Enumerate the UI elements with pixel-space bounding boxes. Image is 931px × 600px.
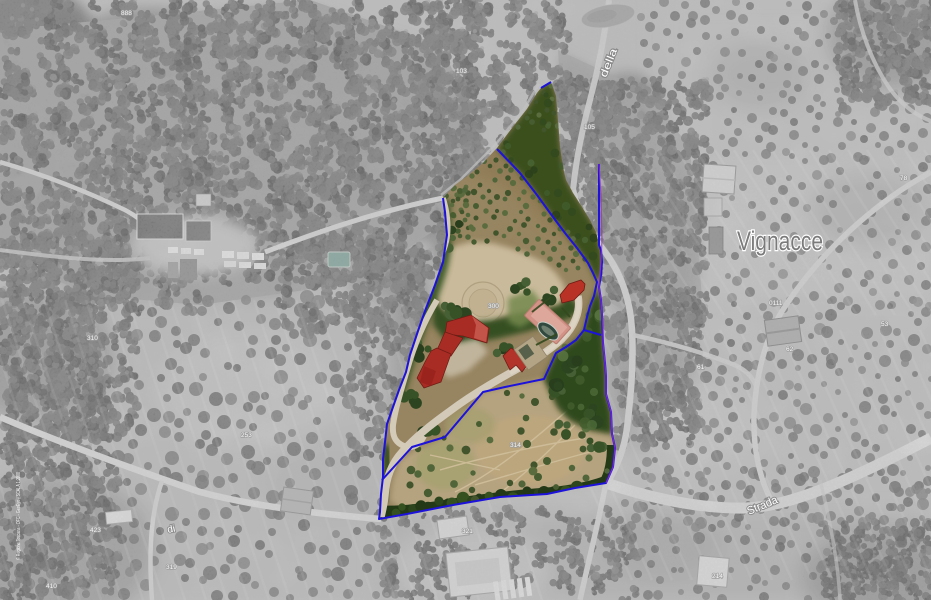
svg-text:105: 105 [584,124,595,131]
svg-text:214: 214 [712,573,723,580]
svg-text:253: 253 [241,432,252,439]
svg-text:321: 321 [462,528,473,535]
svg-text:Vignacce: Vignacce [737,226,823,256]
svg-text:61: 61 [697,364,705,371]
svg-text:888: 888 [121,10,132,17]
svg-text:300: 300 [488,303,499,310]
svg-text:410: 410 [46,583,57,590]
svg-text:0111: 0111 [769,300,783,307]
svg-text:53: 53 [881,321,889,328]
svg-text:319: 319 [166,564,177,571]
svg-text:423: 423 [90,527,101,534]
svg-text:314: 314 [510,442,521,449]
svg-text:62: 62 [786,346,794,353]
svg-text:310: 310 [87,335,98,342]
svg-text:78: 78 [900,175,908,182]
svg-text:103: 103 [456,68,467,75]
svg-text:© Regione Toscana - OFC - GeoE: © Regione Toscana - OFC - GeoEye - SCALA… [15,472,22,560]
